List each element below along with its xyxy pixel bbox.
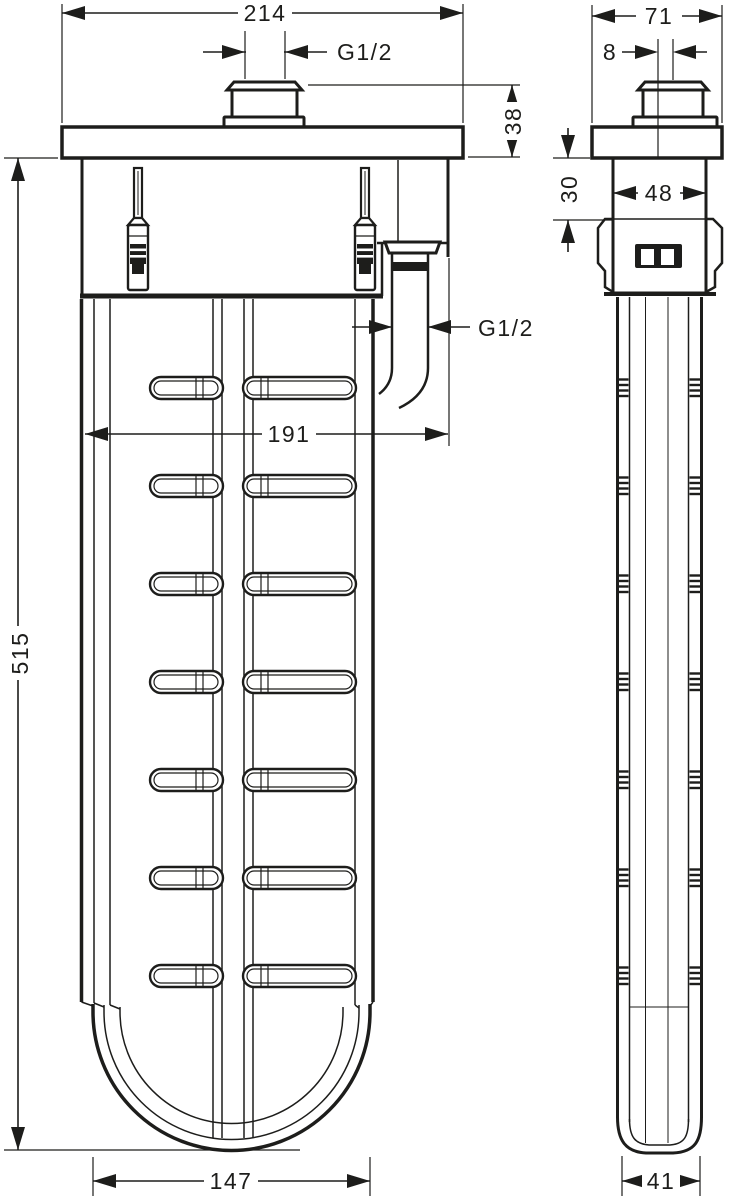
dim-side-overall-width: 71: [645, 3, 674, 29]
dim-connection-offset: 8: [603, 39, 617, 65]
dim-outlet-connection-thread: G1/2: [478, 315, 534, 341]
basket-bottom: [93, 1004, 370, 1151]
dim-flange-stack-height: 38: [500, 107, 526, 136]
dim-overall-height: 515: [7, 632, 33, 675]
front-view: [62, 82, 463, 1151]
side-view: [592, 82, 722, 1153]
dim-front-inner-width: 191: [268, 421, 311, 447]
connector-socket: [635, 244, 682, 268]
top-connector-side: [633, 82, 717, 127]
body-side: [604, 158, 716, 294]
flange-plate-side: [592, 127, 722, 158]
dim-front-bottom-width: 147: [210, 1168, 253, 1194]
outlet-joint-band: [391, 262, 429, 271]
dim-clip-distance: 30: [556, 175, 582, 204]
flange-plate-front: [62, 127, 463, 158]
dimension-drawing: 214 G1/2 38 G1/2 191 515 147 71 8 48 30 …: [0, 0, 729, 1200]
technical-drawing-page: 214 G1/2 38 G1/2 191 515 147 71 8 48 30 …: [0, 0, 729, 1200]
dim-front-overall-width: 214: [244, 0, 287, 26]
dimension-labels: 214 G1/2 38 G1/2 191 515 147 71 8 48 30 …: [7, 0, 675, 1194]
dim-top-connection-thread: G1/2: [337, 39, 393, 65]
shaft: [618, 297, 702, 1153]
top-connector-front: [224, 82, 304, 127]
outlet-connector: [379, 242, 440, 408]
fastening-screw-right: [355, 168, 375, 290]
fastening-screw-left: [128, 168, 148, 290]
basket-walls: [82, 299, 374, 1009]
dim-side-body-width: 48: [645, 180, 674, 206]
hose-channel: [213, 299, 253, 1138]
dim-side-bottom-width: 41: [647, 1168, 676, 1194]
